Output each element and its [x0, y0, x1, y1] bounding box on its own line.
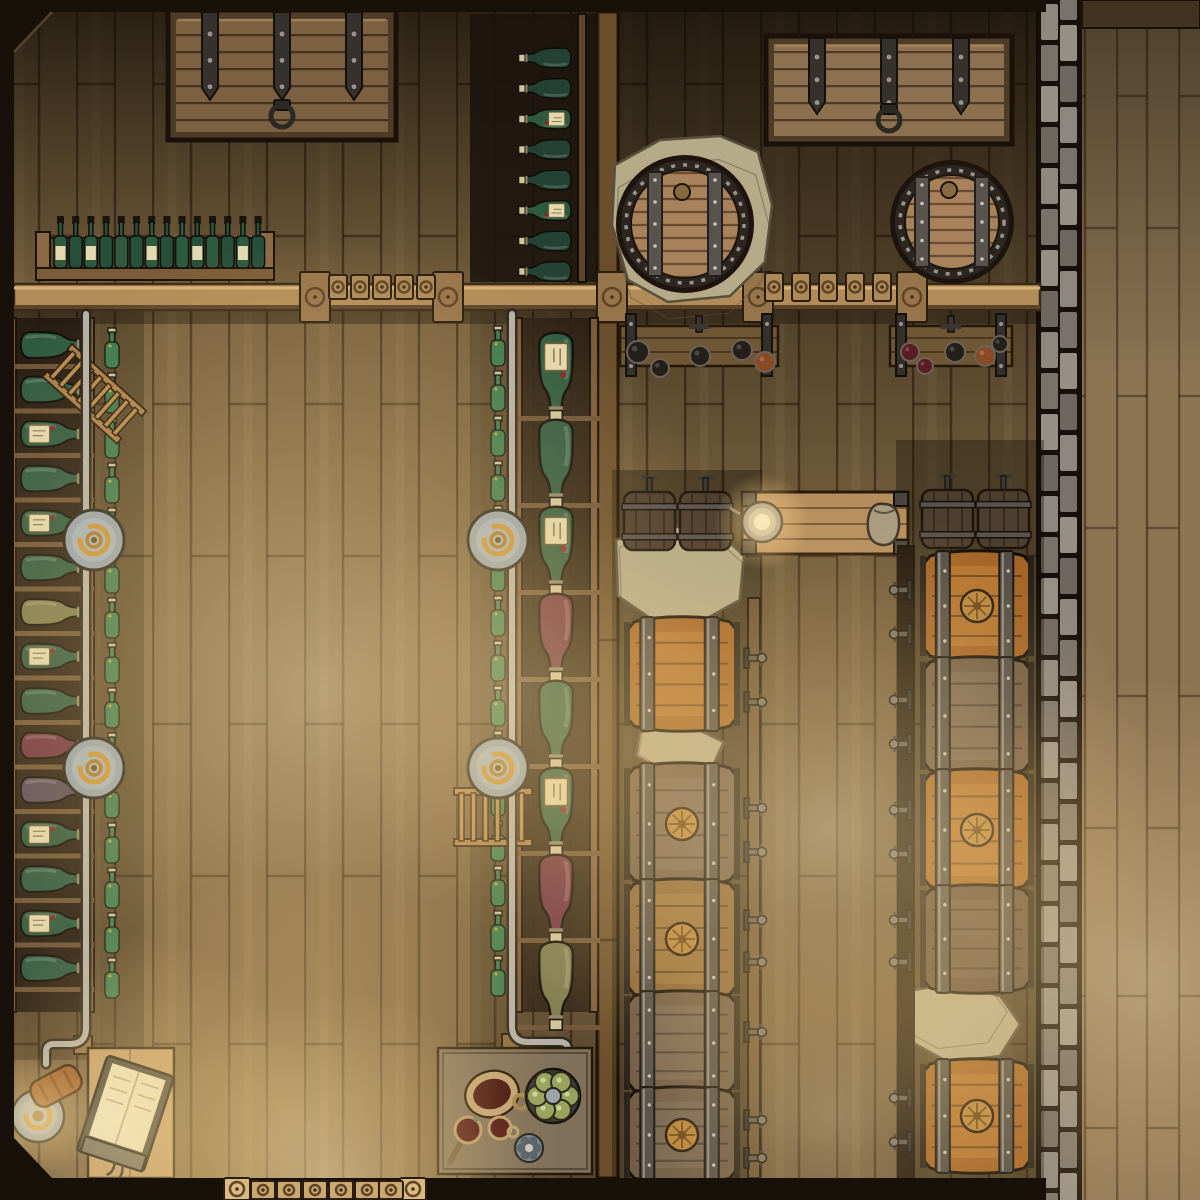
stone-brick: [1060, 148, 1077, 184]
barrel-top-view-right: [890, 160, 1014, 284]
mug: [690, 346, 710, 366]
stone-brick: [1060, 271, 1077, 307]
mug: [901, 343, 919, 361]
mug: [945, 342, 965, 362]
stone-brick: [1060, 476, 1077, 512]
stone-brick: [1060, 435, 1077, 471]
battlemap-canvas: [0, 0, 1200, 1200]
keg-tap: [945, 476, 950, 490]
stone-brick: [1060, 517, 1077, 553]
light-glow: [714, 474, 810, 570]
barrel-top-view-left: [616, 155, 754, 293]
battlemap-stage: [0, 0, 1200, 1200]
mug: [651, 359, 669, 377]
wooden-chest-top-right: [766, 36, 1012, 144]
keg-hoop: [976, 502, 1031, 508]
stone-brick: [1041, 373, 1058, 409]
mug: [755, 352, 775, 372]
stone-brick: [1060, 353, 1077, 389]
wine-rack-middle-upper: [470, 14, 598, 282]
stone-brick: [1041, 45, 1058, 81]
stone-brick: [1060, 25, 1077, 61]
stone-brick: [1041, 209, 1058, 245]
corner-plate: [894, 492, 908, 506]
stone-brick: [1041, 332, 1058, 368]
mug: [732, 340, 752, 360]
stone-brick: [1041, 250, 1058, 286]
bung-hole: [674, 184, 690, 200]
mug: [627, 341, 649, 363]
stone-brick: [1041, 127, 1058, 163]
stone-brick: [1060, 394, 1077, 430]
stone-brick: [1060, 558, 1077, 594]
mug: [992, 336, 1008, 352]
mug: [975, 346, 995, 366]
stone-brick: [1060, 189, 1077, 225]
bung-hole: [941, 182, 957, 198]
shadow-overlay: [1082, 0, 1200, 380]
stone-brick: [1060, 230, 1077, 266]
keg-tap: [1001, 476, 1006, 490]
stone-brick: [1060, 0, 1077, 20]
wooden-chest-top-left: [168, 10, 396, 140]
stone-brick: [1060, 107, 1077, 143]
stone-brick: [1041, 168, 1058, 204]
stone-brick: [1041, 291, 1058, 327]
mug: [917, 358, 933, 374]
keg-hoop: [976, 532, 1031, 538]
bottom-trim: [224, 1178, 426, 1200]
stone-brick: [1041, 86, 1058, 122]
keg-hoop: [920, 502, 975, 508]
stone-brick: [1060, 66, 1077, 102]
stone-brick: [1060, 312, 1077, 348]
